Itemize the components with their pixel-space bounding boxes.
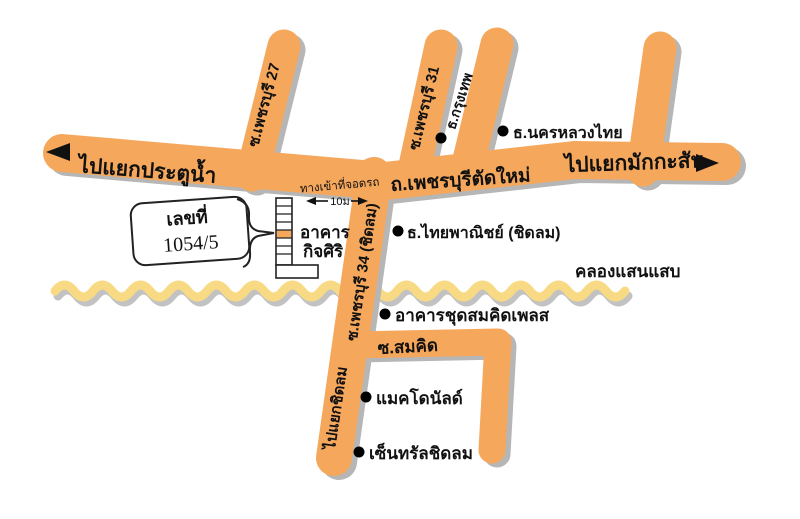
somkid-place-dot xyxy=(380,309,391,320)
building-base xyxy=(276,265,318,278)
distance-arrow-left-icon xyxy=(306,197,316,205)
central-chidlom-label: เซ็นทรัลชิดลม xyxy=(369,441,473,463)
building-name-line2: กิจศิริ xyxy=(303,242,344,261)
parking-distance-label: 10ม xyxy=(330,196,350,208)
nakornluang-bank-dot xyxy=(498,126,509,137)
address-callout: เลขที่ 1054/5 xyxy=(130,196,250,266)
nakornluang-bank-label: ธ.นครหลวงไทย xyxy=(513,123,623,142)
canal-label: คลองแสนแสบ xyxy=(575,262,680,281)
thai-panich-bank-label: ธ.ไทยพาณิชย์ (ชิดลม) xyxy=(407,223,561,242)
mcdonalds-label: แมคโดนัลด์ xyxy=(376,388,463,408)
map-canvas: ไปแยกประตูน้ำ ถ.เพชรบุรีตัดใหม่ ไปแยกมัก… xyxy=(0,0,800,519)
address-box xyxy=(130,196,250,266)
thai-panich-bank-dot xyxy=(393,226,404,237)
mcdonalds-dot xyxy=(361,392,372,403)
map-svg: ไปแยกประตูน้ำ ถ.เพชรบุรีตัดใหม่ ไปแยกมัก… xyxy=(0,0,800,519)
address-number: 1054/5 xyxy=(162,231,219,257)
building-entrance-mark xyxy=(277,230,291,238)
somkid-place-label: อาคารชุดสมคิดเพลส xyxy=(395,306,550,326)
soi-somkid-label: ซ.สมคิด xyxy=(377,336,438,358)
building-name-line1: อาคาร xyxy=(300,223,351,242)
bangkok-bank-dot xyxy=(436,133,447,144)
central-chidlom-dot xyxy=(354,447,365,458)
